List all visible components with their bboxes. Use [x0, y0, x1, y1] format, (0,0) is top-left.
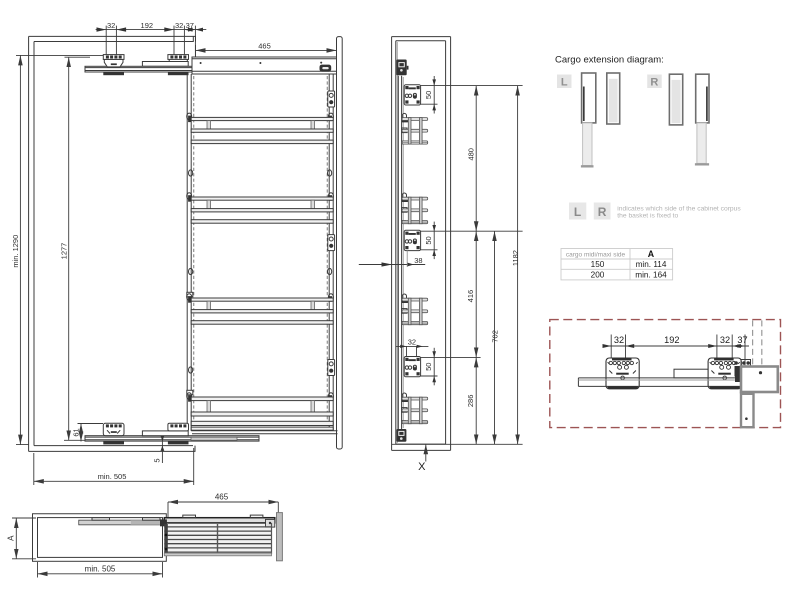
svg-text:32: 32	[614, 335, 624, 345]
svg-text:465: 465	[258, 41, 271, 50]
svg-text:465: 465	[215, 493, 229, 502]
svg-text:L: L	[574, 205, 581, 219]
svg-text:min. 505: min. 505	[98, 472, 127, 481]
svg-text:192: 192	[141, 21, 154, 30]
svg-text:A: A	[7, 535, 16, 541]
svg-text:L: L	[561, 77, 568, 89]
svg-text:286: 286	[466, 395, 475, 408]
svg-text:192: 192	[664, 335, 679, 345]
svg-text:the basket is fixed to: the basket is fixed to	[617, 212, 678, 219]
svg-text:min. 1290: min. 1290	[11, 235, 20, 268]
svg-text:5: 5	[152, 458, 161, 462]
svg-text:38: 38	[414, 256, 422, 265]
svg-text:32: 32	[107, 21, 115, 30]
svg-text:32: 32	[408, 337, 416, 346]
svg-text:32: 32	[720, 335, 730, 345]
svg-text:150: 150	[591, 260, 605, 269]
svg-text:37: 37	[186, 21, 194, 30]
svg-text:37: 37	[737, 335, 747, 345]
svg-text:X: X	[418, 461, 426, 473]
svg-text:702: 702	[490, 330, 499, 343]
svg-text:50: 50	[424, 91, 433, 99]
svg-text:R: R	[598, 205, 607, 219]
svg-text:416: 416	[466, 290, 475, 303]
svg-text:200: 200	[591, 271, 605, 280]
svg-text:480: 480	[466, 148, 475, 161]
svg-text:min. 164: min. 164	[635, 271, 667, 280]
svg-text:61: 61	[72, 428, 81, 436]
svg-text:cargo midi/maxi side: cargo midi/maxi side	[566, 252, 626, 259]
svg-text:1277: 1277	[60, 243, 69, 260]
svg-text:R: R	[650, 77, 658, 89]
svg-text:1182: 1182	[511, 250, 520, 266]
svg-text:min. 505: min. 505	[85, 564, 116, 573]
svg-text:min. 114: min. 114	[636, 260, 667, 269]
svg-text:32: 32	[175, 21, 183, 30]
svg-text:Cargo extension diagram:: Cargo extension diagram:	[555, 55, 664, 66]
svg-text:A: A	[648, 249, 655, 259]
